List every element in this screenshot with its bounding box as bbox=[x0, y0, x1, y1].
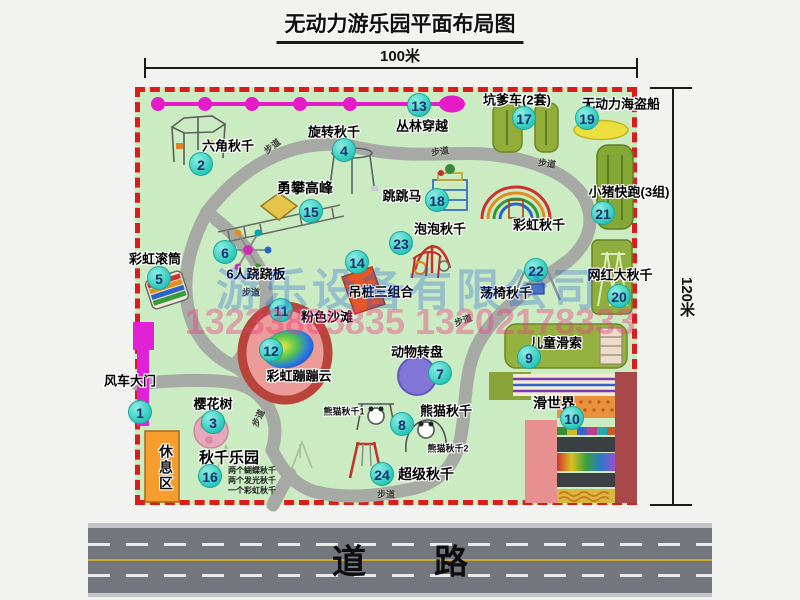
rest-area-label: 休息区 bbox=[148, 437, 176, 499]
watermark-phone: 13233805835 13202178333 bbox=[185, 301, 635, 343]
road-strip: 道 路 bbox=[88, 523, 712, 597]
road-label: 道 路 bbox=[332, 534, 468, 583]
right-dimension-label: 120米 bbox=[676, 277, 697, 317]
top-dimension-label: 100米 bbox=[380, 45, 420, 66]
page-title: 无动力游乐园平面布局图 bbox=[277, 8, 524, 44]
page: 无动力游乐园平面布局图 100米 120米 bbox=[0, 0, 800, 600]
